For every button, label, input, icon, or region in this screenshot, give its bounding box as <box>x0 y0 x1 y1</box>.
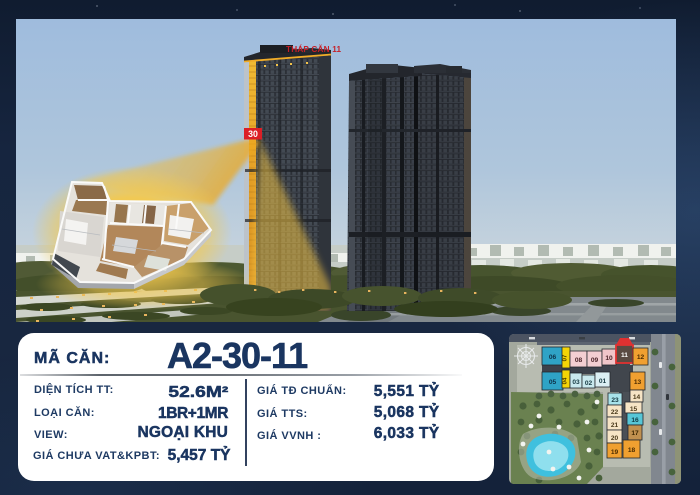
svg-text:14: 14 <box>633 394 641 401</box>
svg-text:11: 11 <box>621 352 628 359</box>
svg-text:16: 16 <box>631 417 639 424</box>
svg-text:12: 12 <box>637 354 645 361</box>
svg-text:15: 15 <box>630 406 638 413</box>
svg-text:20: 20 <box>611 435 619 442</box>
svg-text:03: 03 <box>572 379 580 386</box>
svg-text:23: 23 <box>611 397 619 404</box>
svg-text:18: 18 <box>628 447 636 454</box>
svg-text:21: 21 <box>611 422 619 429</box>
svg-text:02: 02 <box>585 380 593 387</box>
svg-text:30: 30 <box>248 129 258 139</box>
svg-text:THÁP CĂN 11: THÁP CĂN 11 <box>286 44 342 54</box>
svg-text:06: 06 <box>549 354 557 361</box>
svg-text:22: 22 <box>611 409 619 416</box>
svg-text:07: 07 <box>563 354 569 361</box>
svg-text:10: 10 <box>605 355 613 362</box>
svg-text:05: 05 <box>549 379 557 386</box>
svg-text:01: 01 <box>599 378 607 385</box>
svg-text:08: 08 <box>575 357 583 364</box>
svg-text:19: 19 <box>611 449 619 456</box>
svg-text:04: 04 <box>563 377 569 384</box>
svg-text:13: 13 <box>634 379 642 386</box>
svg-text:09: 09 <box>591 357 599 364</box>
svg-text:17: 17 <box>631 430 639 437</box>
